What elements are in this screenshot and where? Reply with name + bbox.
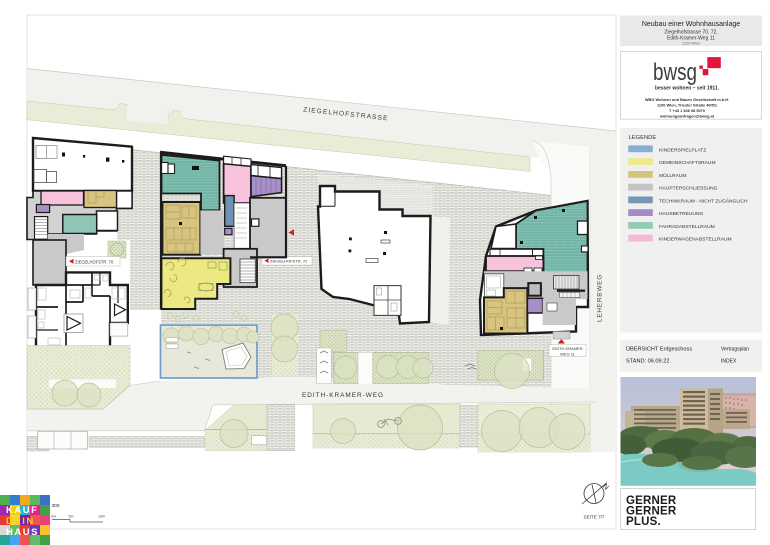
svg-text:Vertragsplan: Vertragsplan xyxy=(721,347,749,353)
svg-text:LEGENDE: LEGENDE xyxy=(629,135,657,141)
svg-text:HAUPTERSCHLIESSUNG: HAUPTERSCHLIESSUNG xyxy=(659,186,718,192)
svg-text:0m: 0m xyxy=(51,515,56,519)
svg-text:KINDERSPIELPLATZ: KINDERSPIELPLATZ xyxy=(659,147,706,153)
svg-text:FAHRADABSTELLRAUM: FAHRADABSTELLRAUM xyxy=(659,224,715,230)
svg-text:1100 Wien, Triester Straße 40/: 1100 Wien, Triester Straße 40/5/1 xyxy=(657,103,718,108)
svg-text:HAUSBETREUUNG: HAUSBETREUUNG xyxy=(659,211,703,217)
svg-text:5m: 5m xyxy=(69,515,74,519)
svg-text:KINDERWAGENABSTELLRAUM: KINDERWAGENABSTELLRAUM xyxy=(659,237,732,243)
svg-text:besser wohnen – seit 1911.: besser wohnen – seit 1911. xyxy=(655,85,720,91)
svg-text:ÜBERSICHT Erdgeschoss: ÜBERSICHT Erdgeschoss xyxy=(626,346,692,353)
svg-text:wohnungsanfragen@bwsg.at: wohnungsanfragen@bwsg.at xyxy=(659,113,715,118)
svg-text:GEMEINSCHAFTSRAUM: GEMEINSCHAFTSRAUM xyxy=(659,160,716,166)
svg-text:DEIN: DEIN xyxy=(6,516,35,527)
svg-text:Neubau einer Wohnhausanlage: Neubau einer Wohnhausanlage xyxy=(642,21,740,28)
svg-text:T +43 1 546 08 5070: T +43 1 546 08 5070 xyxy=(669,108,705,113)
svg-text:EDITH KRAMER: EDITH KRAMER xyxy=(552,346,582,351)
svg-text:ZIEGELHOFSTR. 72: ZIEGELHOFSTR. 72 xyxy=(270,259,308,264)
svg-text:Edith-Kramer-Weg 11: Edith-Kramer-Weg 11 xyxy=(667,36,715,42)
svg-text:300: 300 xyxy=(52,503,60,509)
svg-text:10m: 10m xyxy=(98,515,105,519)
svg-text:HAUS: HAUS xyxy=(6,527,39,538)
svg-text:bwsg: bwsg xyxy=(653,59,697,86)
svg-text:SEITE 7/7: SEITE 7/7 xyxy=(584,515,605,520)
svg-text:MÜLLRAUM: MÜLLRAUM xyxy=(659,172,686,179)
svg-text:TECHNIKRAUM - NICHT ZUGÄNGLICH: TECHNIKRAUM - NICHT ZUGÄNGLICH xyxy=(659,197,748,204)
svg-text:EDITH-KRAMER-WEG: EDITH-KRAMER-WEG xyxy=(302,392,384,399)
svg-text:ZIEGELHOFSTR. 70: ZIEGELHOFSTR. 70 xyxy=(75,259,114,264)
svg-text:1220 Wien: 1220 Wien xyxy=(682,42,700,46)
svg-text:WBG Wohnen und Bauen Gesellsch: WBG Wohnen und Bauen Gesellschaft m.b.H. xyxy=(645,97,729,102)
svg-text:INDEX: INDEX xyxy=(721,359,737,365)
svg-text:STAND: 06.09.22: STAND: 06.09.22 xyxy=(626,359,669,365)
svg-text:LEHERBWEG: LEHERBWEG xyxy=(597,274,604,322)
svg-text:WEG 11: WEG 11 xyxy=(560,352,576,357)
svg-text:KAUF: KAUF xyxy=(6,505,38,516)
svg-text:PLUS.: PLUS. xyxy=(626,516,661,528)
